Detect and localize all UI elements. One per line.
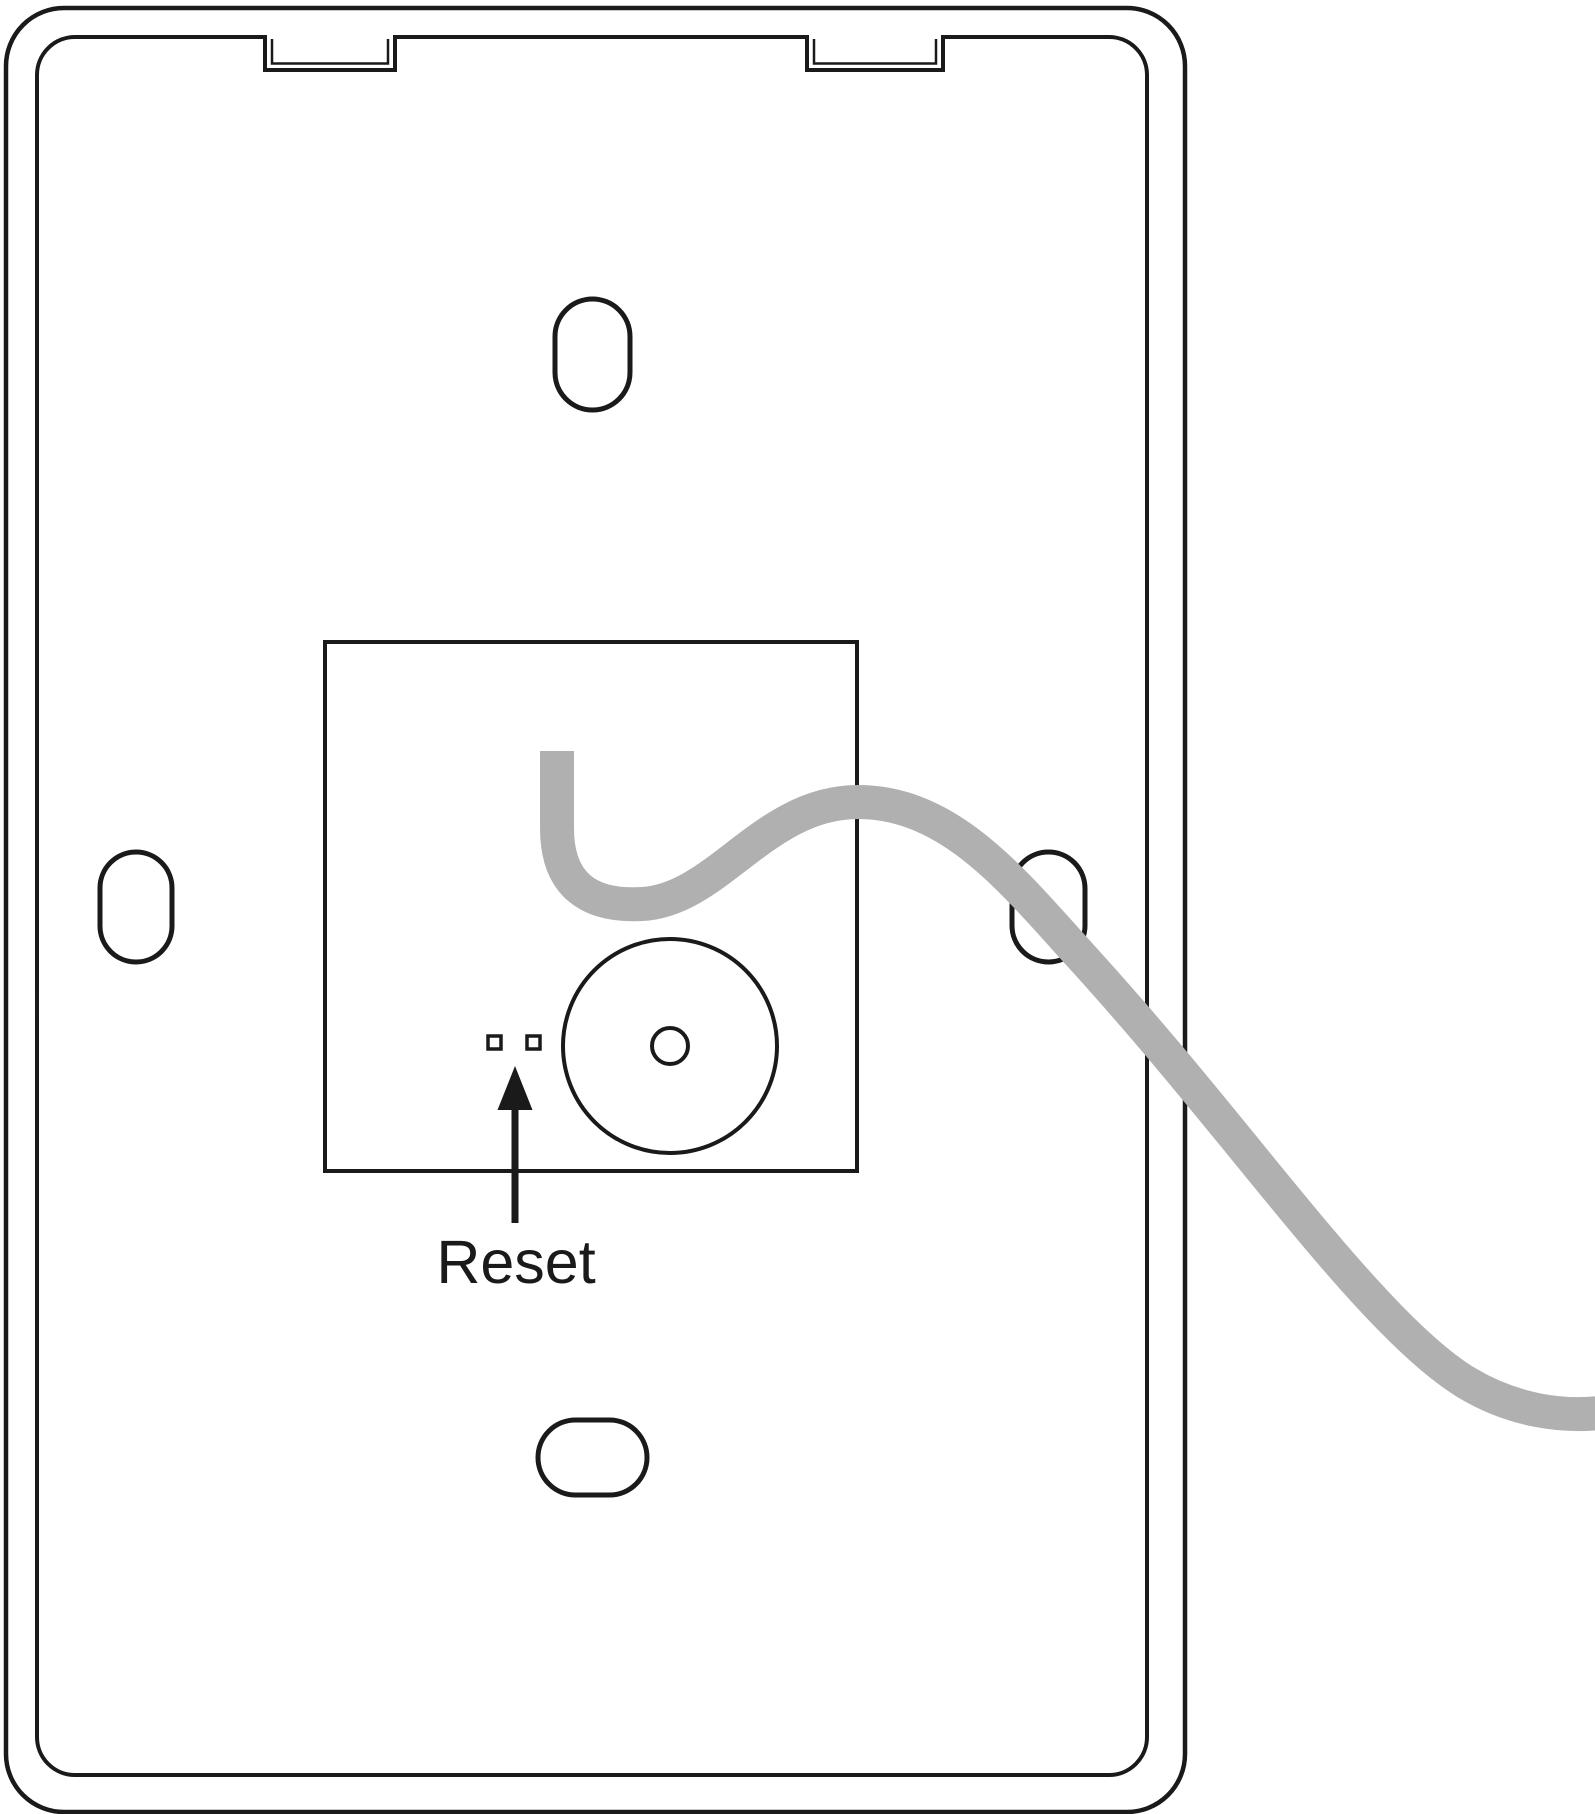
speaker-center-hole: [652, 1028, 688, 1064]
diagram-canvas: Reset: [0, 0, 1595, 1814]
reset-label: Reset: [436, 1228, 595, 1296]
device-back-diagram: Reset: [0, 0, 1595, 1814]
